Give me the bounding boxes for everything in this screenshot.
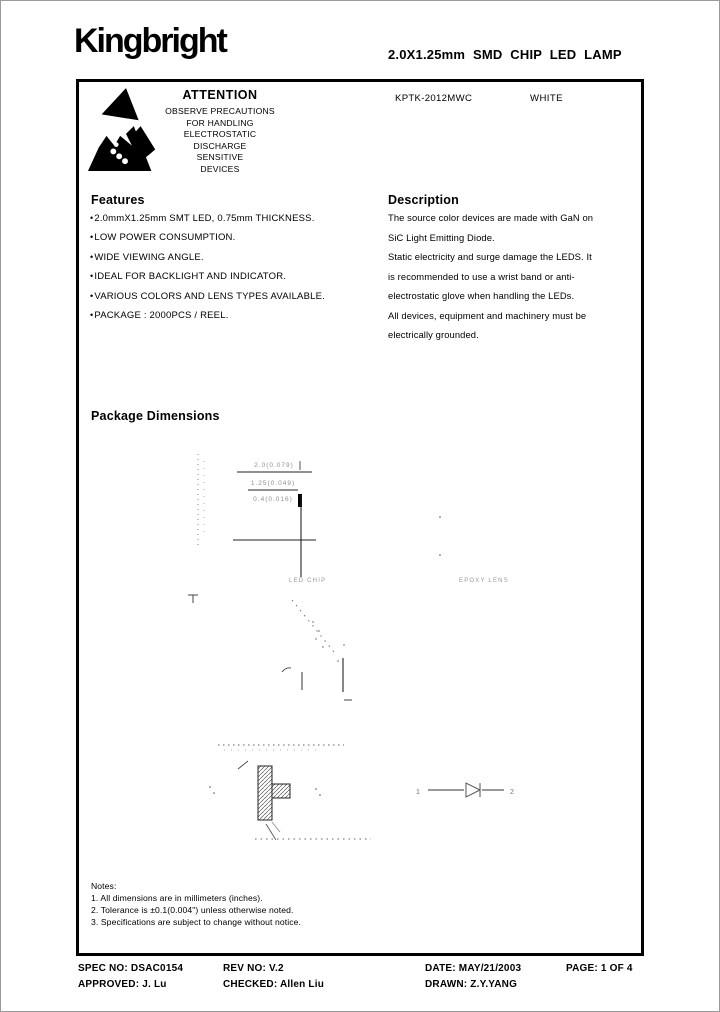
page-num: PAGE: 1 OF 4	[566, 963, 633, 974]
rev-no: REV NO: V.2	[223, 963, 284, 974]
epoxy-lens-label: EPOXY LENS	[459, 578, 509, 584]
dim-label-mid: 1.25(0.049)	[251, 480, 295, 487]
approved-by: APPROVED: J. Lu	[78, 979, 167, 990]
polarity-pin1: 1	[416, 787, 420, 796]
checked-by: CHECKED: Allen Liu	[223, 979, 324, 990]
page-title: 2.0X1.25mm SMD CHIP LED LAMP	[388, 47, 622, 62]
polarity-pin2: 2	[510, 787, 514, 796]
note-item: 1. All dimensions are in millimeters (in…	[91, 893, 301, 905]
drawn-by: DRAWN: Z.Y.YANG	[425, 979, 517, 990]
content-frame: ATTENTION OBSERVE PRECAUTIONS FOR HANDLI…	[76, 79, 644, 956]
note-item: 3. Specifications are subject to change …	[91, 917, 301, 929]
led-chip-label: LED CHIP	[289, 578, 326, 584]
diode-symbol	[466, 783, 480, 797]
note-item: 2. Tolerance is ±0.1(0.004") unless othe…	[91, 905, 301, 917]
dim-label-low: 0.4(0.016)	[253, 496, 293, 503]
spec-no: SPEC NO: DSAC0154	[78, 963, 183, 974]
notes-block: Notes: 1. All dimensions are in millimet…	[91, 881, 301, 929]
package-dimensions-drawing: 2.0(0.079) 1.25(0.049) 0.4(0.016) LED CH…	[76, 79, 644, 956]
date: DATE: MAY/21/2003	[425, 963, 521, 974]
notes-heading: Notes:	[91, 881, 301, 893]
datasheet-page: Kingbright 2.0X1.25mm SMD CHIP LED LAMP …	[0, 0, 720, 1012]
kingbright-logo: Kingbright	[74, 22, 226, 61]
dim-label-top: 2.0(0.079)	[254, 462, 294, 469]
